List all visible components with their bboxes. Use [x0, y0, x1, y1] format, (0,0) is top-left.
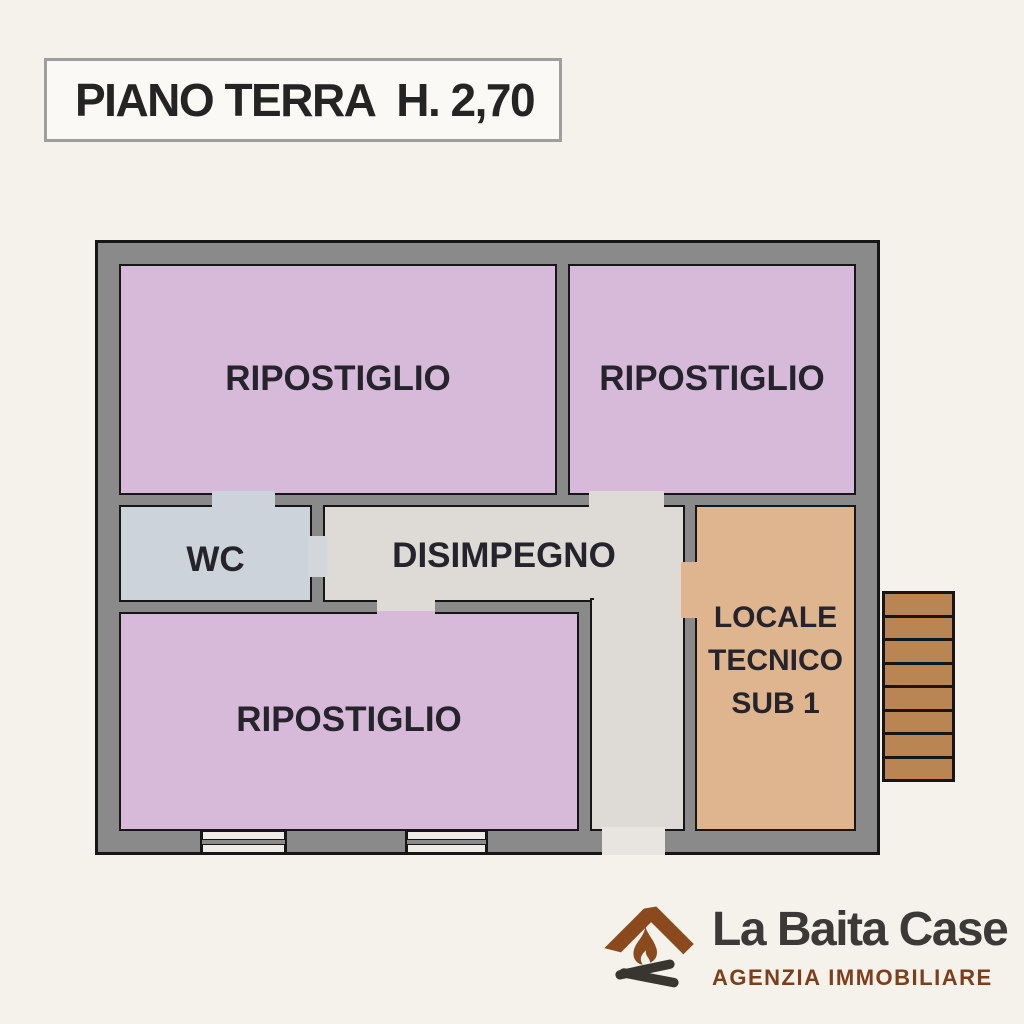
floor-title-box: PIANO TERRA H. 2,70 [44, 58, 562, 142]
stair-tread [885, 594, 952, 615]
room-storage-top-right [568, 264, 856, 495]
floor-plan: RIPOSTIGLIO RIPOSTIGLIO WC DISIMPEGNO RI… [95, 240, 880, 855]
window-pane [407, 831, 486, 840]
floor-title: PIANO TERRA H. 2,70 [75, 73, 534, 127]
stair-tread [885, 662, 952, 686]
window-symbol-left [200, 829, 287, 855]
door-opening-storage-to-wc [212, 491, 275, 510]
stair-tread [885, 756, 952, 780]
window-pane [202, 844, 285, 853]
window-pane [202, 831, 285, 840]
floor-plan-page: PIANO TERRA H. 2,70 RIPOSTIGLIO RIPOSTIG… [0, 0, 1024, 1024]
campfire-house-icon [596, 892, 700, 996]
room-hallway-horizontal [323, 505, 685, 602]
window-pane [407, 844, 486, 853]
stair-tread [885, 709, 952, 733]
stair-tread [885, 732, 952, 756]
room-wc [119, 505, 312, 602]
room-hallway-vertical [590, 598, 685, 831]
door-opening-wc-to-hallway [308, 536, 327, 577]
stair-tread [885, 615, 952, 639]
agency-logo: La Baita Case AGENZIA IMMOBILIARE [596, 892, 1007, 996]
door-opening-storage-to-hallway [589, 491, 664, 508]
agency-logo-text: La Baita Case AGENZIA IMMOBILIARE [712, 892, 1007, 991]
door-opening-hallway-to-storage-bottom [377, 597, 435, 616]
window-symbol-right [405, 829, 488, 855]
room-storage-bottom [119, 612, 579, 831]
stair-tread [885, 638, 952, 662]
door-opening-hallway-to-technical [681, 562, 700, 618]
exterior-door-opening [602, 827, 665, 855]
room-storage-top-left [119, 264, 557, 495]
stair-tread [885, 685, 952, 709]
hallway-junction [594, 596, 681, 608]
agency-name: La Baita Case [712, 906, 1007, 954]
external-stairs [882, 591, 955, 782]
room-technical [695, 505, 856, 831]
agency-tagline: AGENZIA IMMOBILIARE [712, 965, 1007, 991]
